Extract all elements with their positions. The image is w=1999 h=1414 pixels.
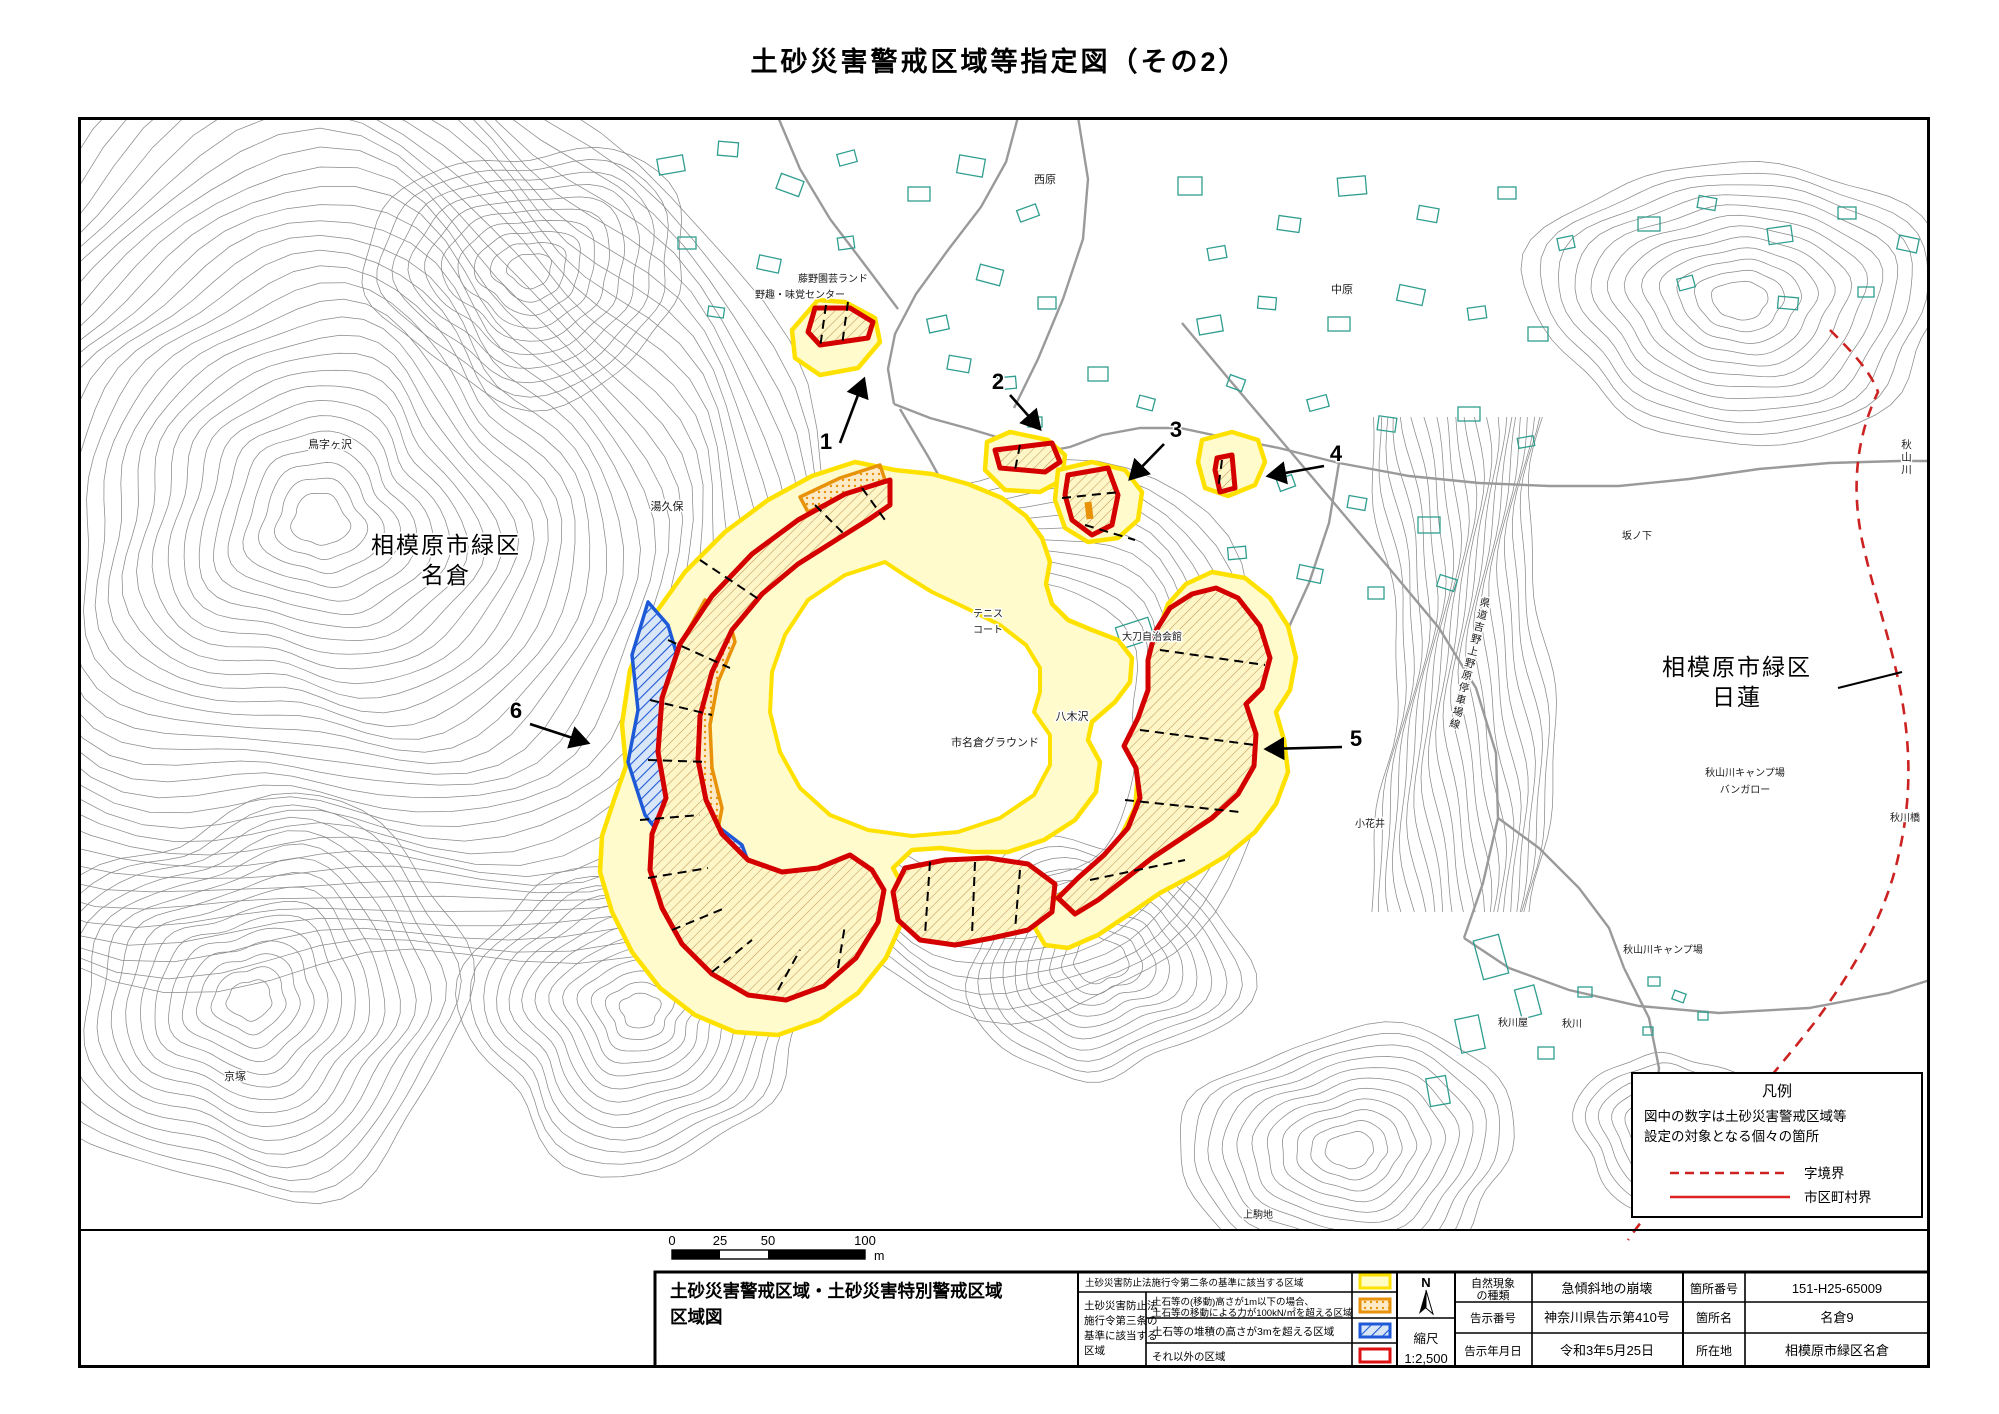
table-title-line2: 区域図 xyxy=(670,1307,723,1327)
place-label-akikawabashi: 秋川橋 xyxy=(1890,811,1920,824)
info-value-location: 相模原市緑区名倉 xyxy=(1785,1343,1889,1358)
place-label-sakanoshita: 坂ノ下 xyxy=(1622,530,1652,542)
hazard-map-sheet: 土砂災害警戒区域等指定図（その2） 123456 鳥字ヶ沢湯久保 xyxy=(0,0,1999,1414)
info-value-notice-date: 令和3年5月25日 xyxy=(1560,1343,1654,1358)
bottom-table: 土砂災害警戒区域・土砂災害特別警戒区域 区域図 土砂災害防止法施行令第二条の基準… xyxy=(655,1272,1930,1368)
district-label-nichiren-line1: 相模原市緑区 xyxy=(1662,654,1812,680)
info-label-notice-number: 告示番号 xyxy=(1470,1312,1516,1325)
place-label-obanai: 小花井 xyxy=(1355,817,1385,830)
zone-number-3: 3 xyxy=(1170,417,1182,442)
legend-box-note-2: 設定の対象となる個々の箇所 xyxy=(1644,1128,1819,1144)
legend-row2-line2: 土石等の移動による力が100kN/㎡を超える区域 xyxy=(1152,1307,1353,1319)
scale-value: 1:2,500 xyxy=(1404,1351,1447,1366)
place-label-fujino-engei-land: 藤野園芸ランド xyxy=(798,272,868,285)
scale-tick-100: 100 xyxy=(854,1233,876,1248)
place-label-yashu-mikaku-center: 野趣・味覚センター xyxy=(755,288,845,301)
vertical-label-akiyamagawa-river: 秋山川 xyxy=(1900,438,1912,476)
district-label-nagura-line2: 名倉 xyxy=(421,562,471,588)
map-legend-box: 凡例 図中の数字は土砂災害警戒区域等 設定の対象となる個々の箇所 字境界 市区町… xyxy=(1632,1073,1922,1217)
info-label-phenomenon-1: 自然現象 xyxy=(1471,1276,1515,1290)
legend-row2-line1: 土石等の(移動)高さが1m以下の場合、 xyxy=(1152,1296,1314,1308)
legend-group-line4: 区域 xyxy=(1084,1344,1106,1357)
legend-group-line2: 施行令第三条の xyxy=(1084,1314,1158,1327)
info-label-site-number: 箇所番号 xyxy=(1690,1282,1738,1296)
place-label-kyozuka: 京塚 xyxy=(224,1069,246,1083)
zone-number-2: 2 xyxy=(992,369,1004,394)
legend-row3-label: 土石等の堆積の高さが3mを超える区域 xyxy=(1152,1325,1335,1338)
table-title-line1: 土砂災害警戒区域・土砂災害特別警戒区域 xyxy=(670,1281,1003,1301)
info-label-notice-date: 告示年月日 xyxy=(1464,1344,1522,1358)
place-label-kamikomachi: 上駒地 xyxy=(1243,1208,1273,1221)
map-canvas[interactable]: 123456 鳥字ヶ沢湯久保京塚西原中原坂ノ下秋山川キャンプ場バンガロー秋川橋秋… xyxy=(78,117,1930,1368)
place-label-tachi-jichikaikan: 大刀自治会館 xyxy=(1122,630,1182,643)
place-label-nakahara: 中原 xyxy=(1331,283,1353,296)
place-label-ichinagura-ground: 市名倉グラウンド xyxy=(951,735,1039,749)
swatch-red-outline-zone xyxy=(1360,1349,1390,1362)
info-value-notice-number: 神奈川県告示第410号 xyxy=(1544,1310,1670,1325)
place-label-nishihara: 西原 xyxy=(1034,174,1056,186)
legend-solid-label: 市区町村界 xyxy=(1804,1189,1872,1205)
legend-box-title: 凡例 xyxy=(1762,1083,1792,1100)
page-title: 土砂災害警戒区域等指定図（その2） xyxy=(0,40,1999,79)
info-label-location: 所在地 xyxy=(1696,1344,1732,1358)
swatch-orange-dots-zone xyxy=(1360,1299,1390,1312)
info-value-site-number: 151-H25-65009 xyxy=(1792,1281,1882,1296)
place-label-yukubo: 湯久保 xyxy=(651,499,684,513)
legend-row1-label: 土砂災害防止法施行令第二条の基準に該当する区域 xyxy=(1085,1277,1304,1289)
scale-tick-0: 0 xyxy=(668,1233,675,1248)
info-label-site-name: 箇所名 xyxy=(1696,1310,1732,1325)
place-label-bungalow: バンガロー xyxy=(1720,784,1771,796)
district-label-nichiren-line2: 日蓮 xyxy=(1712,684,1762,710)
info-value-phenomenon: 急傾斜地の崩壊 xyxy=(1561,1281,1652,1296)
scale-bar-unit: m xyxy=(874,1249,884,1263)
legend-box-note-1: 図中の数字は土砂災害警戒区域等 xyxy=(1644,1108,1847,1124)
legend-dashed-label: 字境界 xyxy=(1804,1166,1845,1181)
legend-group-line1: 土砂災害防止法 xyxy=(1084,1299,1158,1312)
district-label-nagura-line1: 相模原市緑区 xyxy=(371,532,521,558)
place-label-akiyamagawa-camp-2: 秋山川キャンプ場 xyxy=(1623,943,1703,956)
place-label-akikawa: 秋川 xyxy=(1562,1017,1582,1030)
swatch-blue-hatch-zone xyxy=(1360,1324,1390,1337)
zone-number-6: 6 xyxy=(510,698,522,723)
legend-group-line3: 基準に該当する xyxy=(1084,1329,1158,1342)
place-label-tennis-line2: コート xyxy=(973,625,1003,636)
map-frame: 123456 鳥字ヶ沢湯久保京塚西原中原坂ノ下秋山川キャンプ場バンガロー秋川橋秋… xyxy=(78,117,1930,1368)
info-value-site-name: 名倉9 xyxy=(1820,1310,1853,1325)
scale-label: 縮尺 xyxy=(1413,1331,1438,1346)
place-label-akiyamagawa-camp-1: 秋山川キャンプ場 xyxy=(1705,766,1785,779)
legend-row4-label: それ以外の区域 xyxy=(1152,1350,1226,1363)
zone-number-1: 1 xyxy=(820,429,832,454)
place-label-akikawaya: 秋川屋 xyxy=(1498,1016,1528,1029)
place-label-tennis-line1: テニス xyxy=(973,609,1003,620)
scale-tick-25: 25 xyxy=(713,1233,727,1248)
scale-tick-50: 50 xyxy=(761,1233,775,1248)
info-label-phenomenon-2: の種類 xyxy=(1477,1288,1510,1302)
zone-number-5: 5 xyxy=(1350,726,1362,751)
place-label-yagisawa: 八木沢 xyxy=(1056,709,1089,723)
swatch-yellow-zone xyxy=(1360,1275,1390,1288)
zone-number-4: 4 xyxy=(1330,441,1343,466)
place-label-torijigasawa: 鳥字ヶ沢 xyxy=(308,437,352,451)
compass-n-label: N xyxy=(1421,1275,1430,1290)
